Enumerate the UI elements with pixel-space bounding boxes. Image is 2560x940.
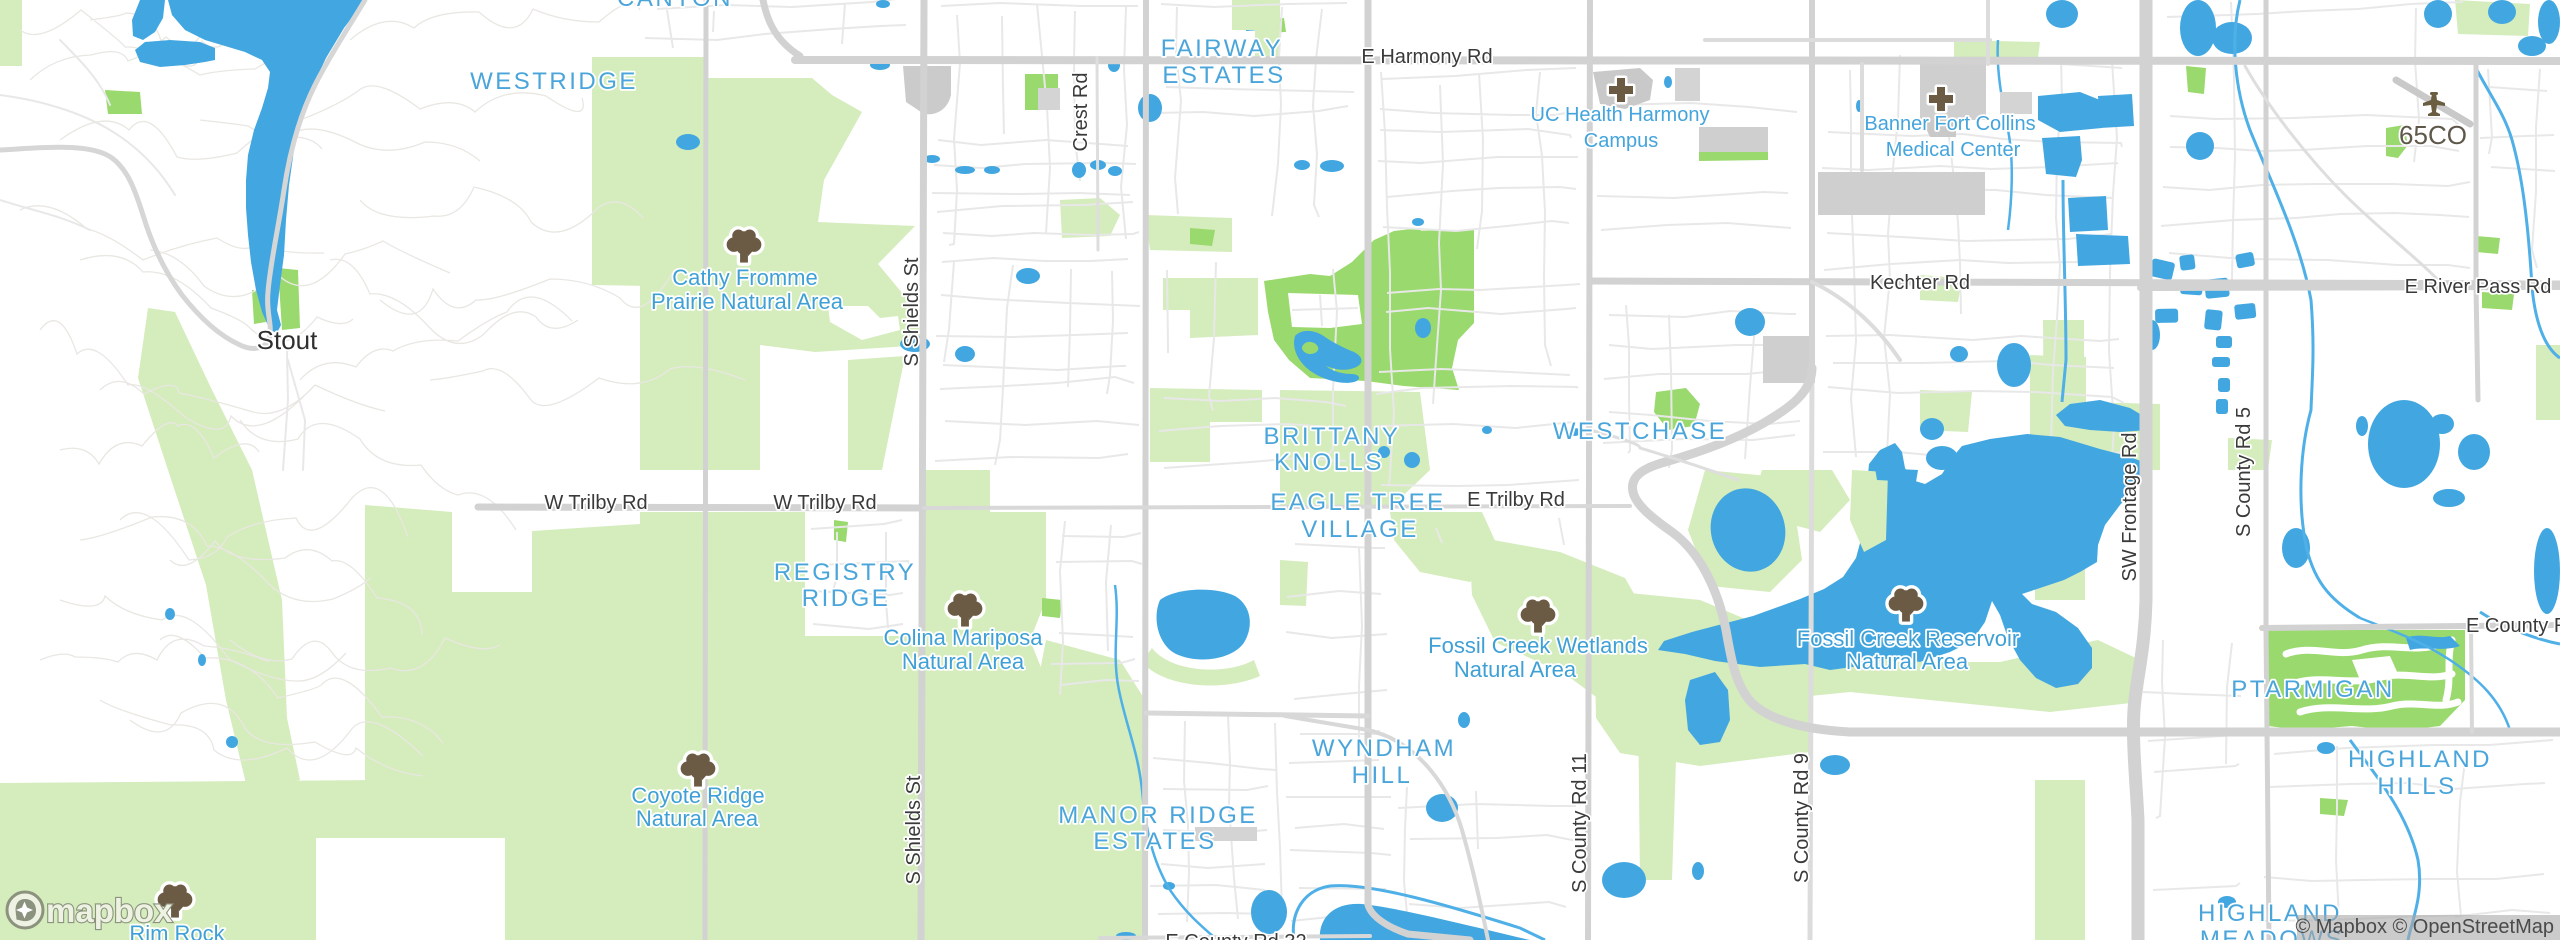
- svg-text:FAIRWAY: FAIRWAY: [1161, 35, 1283, 62]
- svg-text:W Trilby Rd: W Trilby Rd: [773, 492, 876, 514]
- svg-text:mapbox: mapbox: [46, 892, 173, 929]
- svg-text:Coyote Ridge: Coyote Ridge: [631, 783, 764, 808]
- svg-text:E County Rd 32: E County Rd 32: [1165, 931, 1306, 940]
- svg-text:Natural Area: Natural Area: [1846, 649, 1969, 674]
- svg-text:MANOR RIDGE: MANOR RIDGE: [1058, 802, 1258, 829]
- svg-text:KNOLLS: KNOLLS: [1274, 449, 1384, 476]
- svg-text:S County Rd 11: S County Rd 11: [1569, 753, 1591, 893]
- svg-text:Colina Mariposa: Colina Mariposa: [884, 625, 1044, 650]
- svg-text:Fossil Creek Wetlands: Fossil Creek Wetlands: [1428, 633, 1648, 658]
- svg-text:Natural Area: Natural Area: [636, 806, 759, 831]
- svg-text:HILL: HILL: [1352, 762, 1413, 789]
- svg-text:PTARMIGAN: PTARMIGAN: [2231, 676, 2394, 703]
- svg-text:BRITTANY: BRITTANY: [1264, 423, 1401, 450]
- svg-text:Cathy Fromme: Cathy Fromme: [672, 265, 817, 290]
- svg-text:SW Frontage Rd: SW Frontage Rd: [2119, 433, 2141, 582]
- svg-text:WESTCHASE: WESTCHASE: [1553, 418, 1728, 445]
- svg-text:RIDGE: RIDGE: [802, 585, 891, 612]
- svg-text:Stout: Stout: [257, 325, 318, 355]
- svg-text:E River Pass Rd: E River Pass Rd: [2405, 276, 2552, 298]
- svg-text:© Mapbox © OpenStreetMap: © Mapbox © OpenStreetMap: [2296, 916, 2555, 938]
- svg-text:HIGHLAND: HIGHLAND: [2348, 746, 2492, 773]
- svg-text:S Shields St: S Shields St: [901, 257, 923, 366]
- svg-text:Kechter Rd: Kechter Rd: [1870, 272, 1970, 294]
- svg-text:E County Rd 36: E County Rd 36: [2466, 615, 2560, 637]
- svg-text:E Harmony Rd: E Harmony Rd: [1361, 46, 1492, 68]
- svg-text:ESTATES: ESTATES: [1162, 62, 1285, 89]
- svg-text:WYNDHAM: WYNDHAM: [1312, 735, 1456, 762]
- svg-text:S County Rd 9: S County Rd 9: [1791, 753, 1813, 883]
- svg-text:EAGLE TREE: EAGLE TREE: [1270, 489, 1445, 516]
- svg-text:Fossil Creek Reservoir: Fossil Creek Reservoir: [1797, 626, 2020, 651]
- svg-text:Campus: Campus: [1584, 130, 1658, 152]
- svg-text:UC Health Harmony: UC Health Harmony: [1531, 104, 1710, 126]
- svg-text:REGISTRY: REGISTRY: [774, 559, 916, 586]
- svg-text:ESTATES: ESTATES: [1093, 828, 1216, 855]
- svg-text:Banner Fort Collins: Banner Fort Collins: [1864, 113, 2035, 135]
- svg-text:S Shields St: S Shields St: [903, 775, 925, 884]
- svg-text:Medical Center: Medical Center: [1886, 139, 2021, 161]
- svg-text:Crest Rd: Crest Rd: [1070, 73, 1092, 152]
- svg-text:Natural Area: Natural Area: [1454, 657, 1577, 682]
- svg-text:W Trilby Rd: W Trilby Rd: [544, 492, 647, 514]
- svg-text:VILLAGE: VILLAGE: [1301, 516, 1419, 543]
- svg-text:HILLS: HILLS: [2377, 773, 2456, 800]
- svg-text:S County Rd 5: S County Rd 5: [2233, 407, 2255, 537]
- svg-text:E Trilby Rd: E Trilby Rd: [1467, 489, 1565, 511]
- svg-text:WESTRIDGE: WESTRIDGE: [470, 68, 638, 95]
- svg-text:Prairie Natural Area: Prairie Natural Area: [651, 289, 844, 314]
- svg-text:Natural Area: Natural Area: [902, 649, 1025, 674]
- svg-text:65CO: 65CO: [2399, 120, 2467, 150]
- svg-text:CANTON: CANTON: [617, 0, 733, 12]
